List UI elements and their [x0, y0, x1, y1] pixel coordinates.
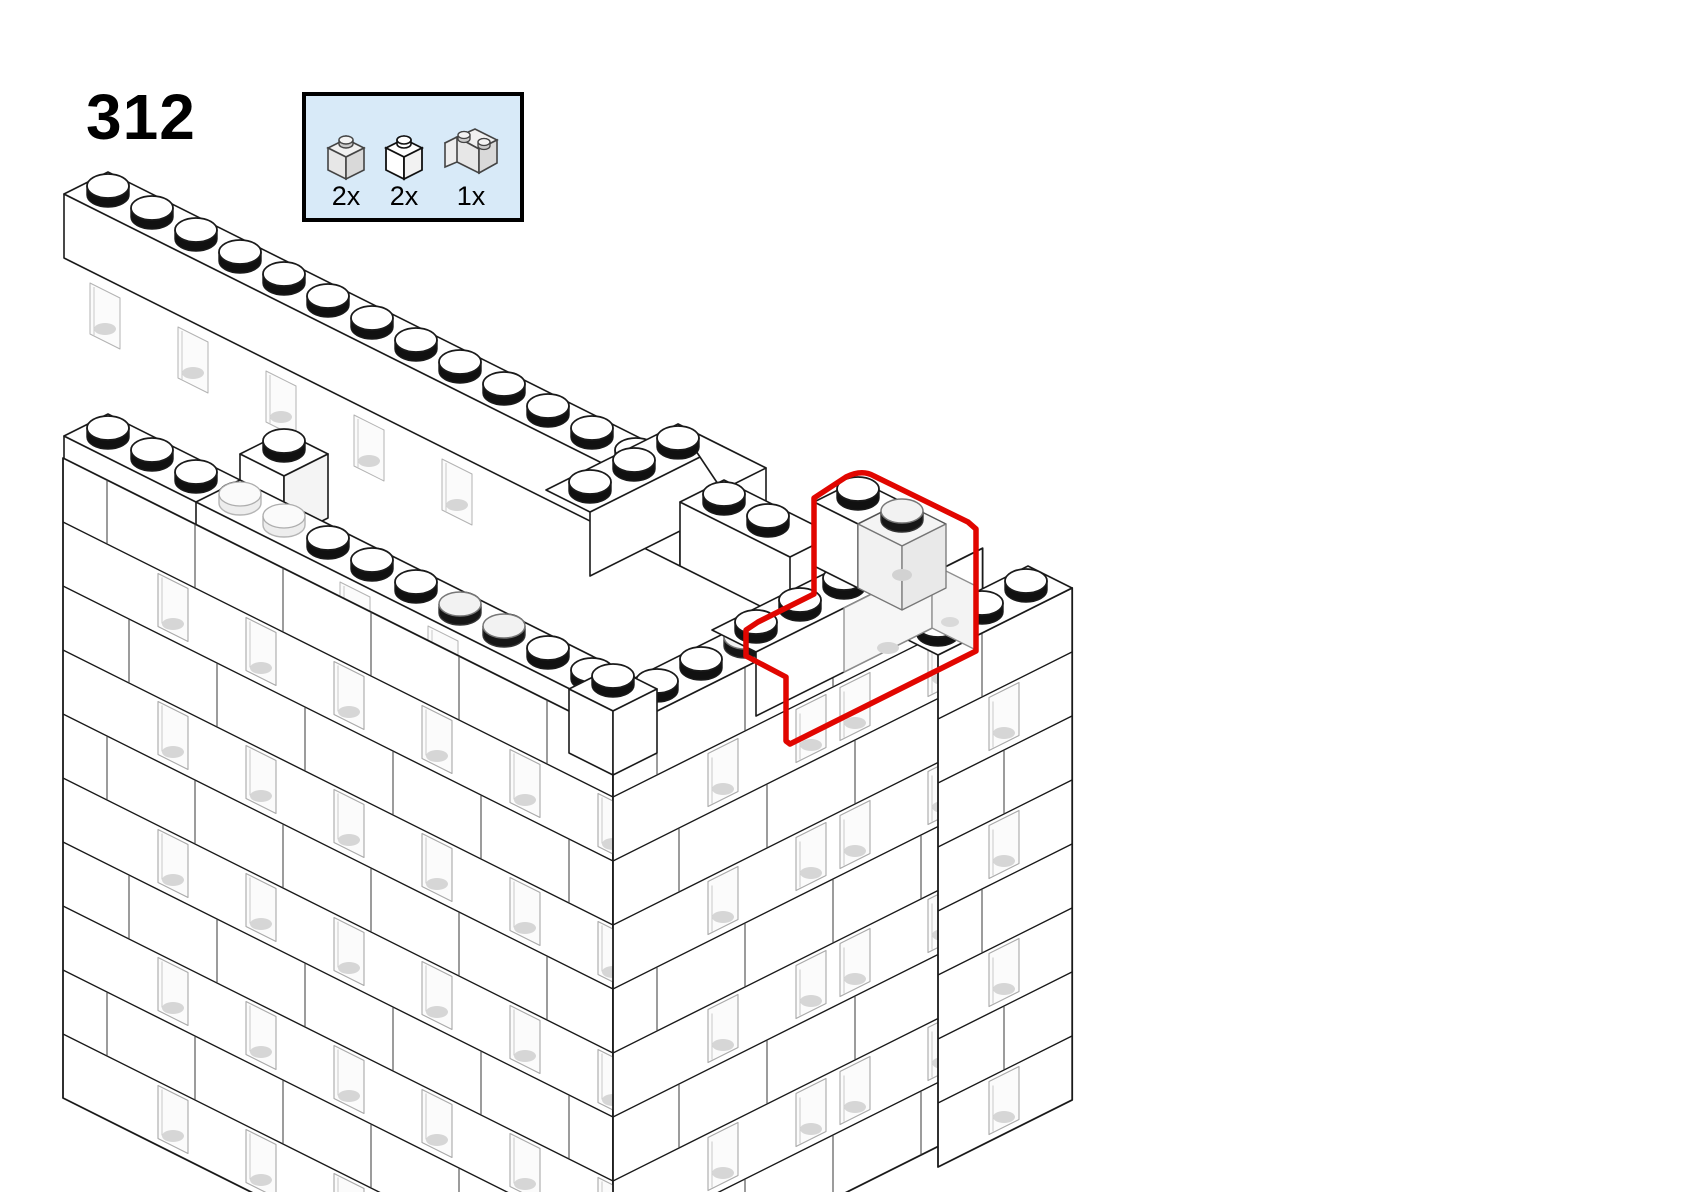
building-step-illustration: [0, 0, 1684, 1192]
